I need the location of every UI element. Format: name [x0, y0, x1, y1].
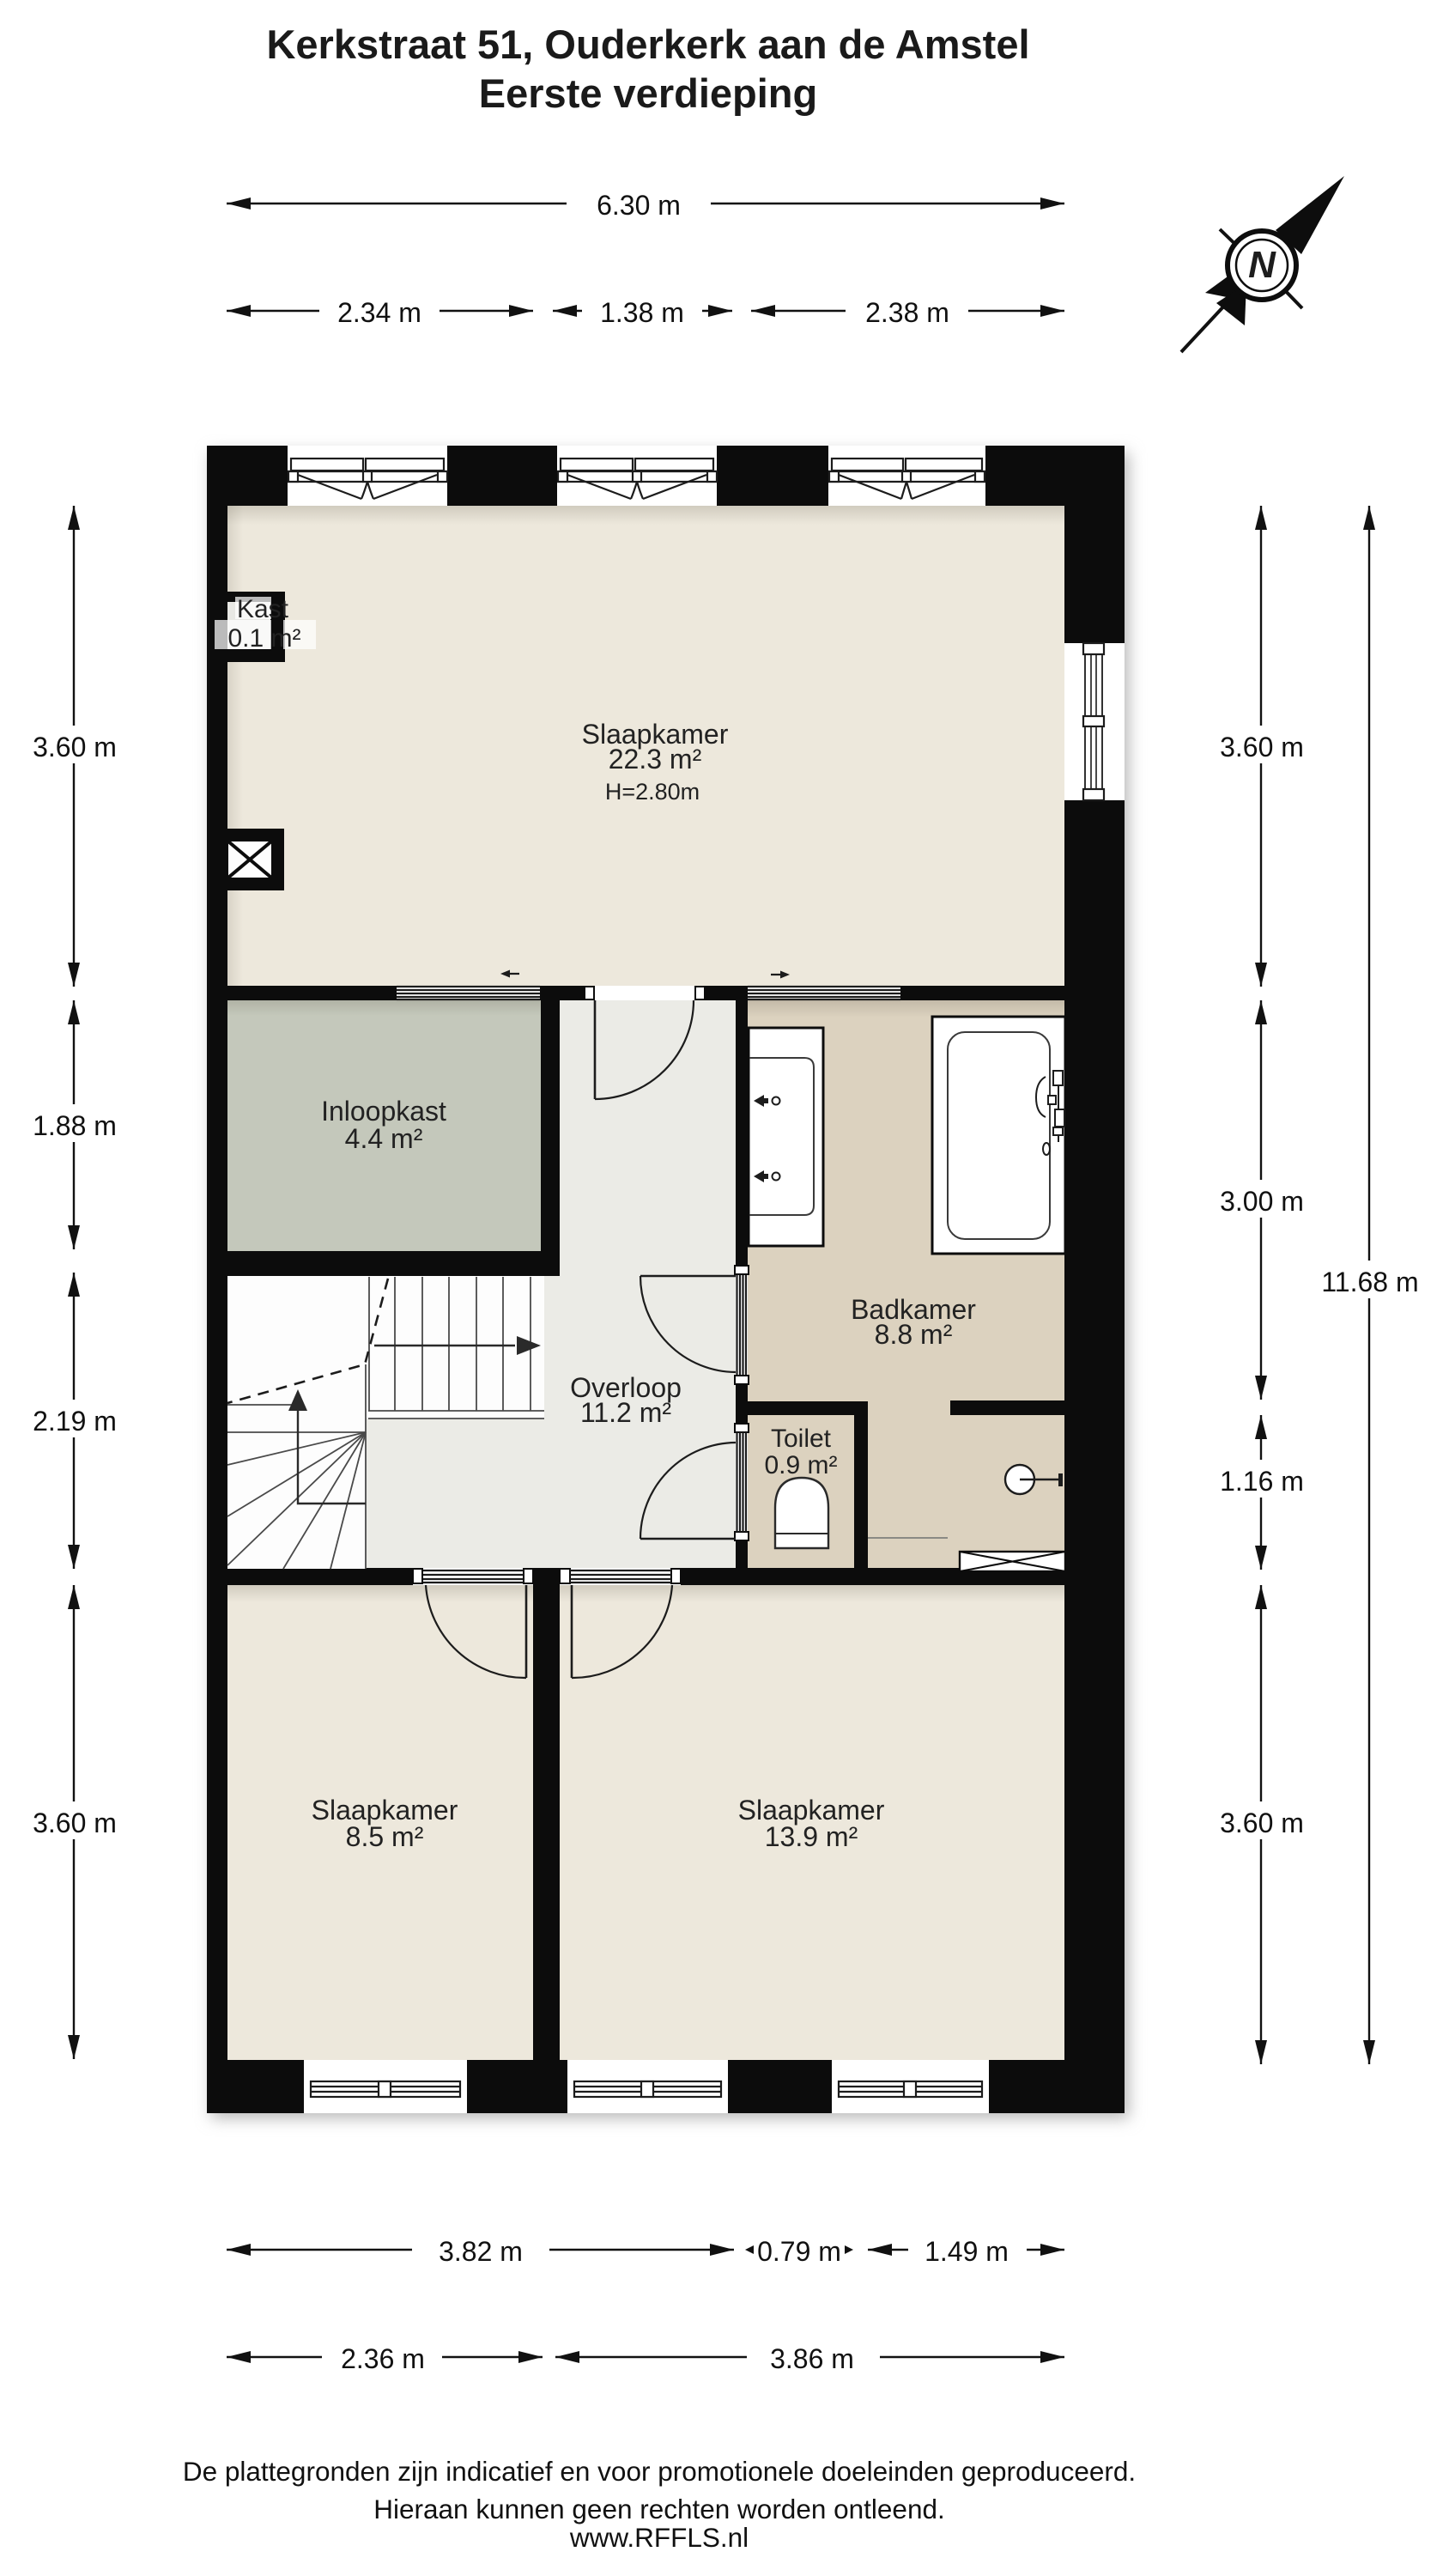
svg-text:4.4 m²: 4.4 m² [345, 1123, 423, 1154]
svg-text:2.34 m: 2.34 m [337, 297, 421, 328]
svg-text:3.82 m: 3.82 m [439, 2236, 523, 2267]
svg-text:De plattegronden zijn indicati: De plattegronden zijn indicatief en voor… [183, 2456, 1136, 2487]
svg-text:11.2 m²: 11.2 m² [580, 1397, 671, 1428]
svg-text:3.86 m: 3.86 m [770, 2343, 854, 2374]
svg-text:Kerkstraat 51, Ouderkerk aan d: Kerkstraat 51, Ouderkerk aan de Amstel [266, 21, 1029, 67]
svg-text:2.38 m: 2.38 m [865, 297, 949, 328]
svg-text:13.9 m²: 13.9 m² [765, 1821, 858, 1852]
svg-text:11.68 m: 11.68 m [1321, 1267, 1418, 1297]
svg-text:Kast: Kast [237, 595, 289, 623]
svg-text:www.RFFLS.nl: www.RFFLS.nl [569, 2522, 749, 2553]
svg-text:H=2.80m: H=2.80m [605, 779, 700, 805]
svg-text:0.1 m²: 0.1 m² [227, 624, 300, 653]
svg-text:8.5 m²: 8.5 m² [346, 1821, 424, 1852]
svg-text:1.49 m: 1.49 m [925, 2236, 1009, 2267]
svg-text:3.60 m: 3.60 m [33, 1807, 117, 1838]
svg-text:3.60 m: 3.60 m [33, 732, 117, 762]
svg-text:1.38 m: 1.38 m [600, 297, 684, 328]
svg-text:0.9 m²: 0.9 m² [764, 1451, 837, 1479]
svg-text:3.60 m: 3.60 m [1220, 1807, 1304, 1838]
svg-text:Toilet: Toilet [771, 1425, 832, 1453]
svg-text:22.3 m²: 22.3 m² [609, 744, 702, 775]
svg-text:2.36 m: 2.36 m [341, 2343, 425, 2374]
svg-text:N: N [1248, 244, 1276, 286]
svg-text:8.8 m²: 8.8 m² [875, 1319, 953, 1350]
svg-text:3.00 m: 3.00 m [1220, 1186, 1304, 1217]
svg-text:Eerste verdieping: Eerste verdieping [479, 70, 817, 116]
svg-text:Inloopkast: Inloopkast [321, 1096, 446, 1127]
svg-text:Hieraan kunnen geen rechten wo: Hieraan kunnen geen rechten worden ontle… [373, 2494, 944, 2524]
svg-text:3.60 m: 3.60 m [1220, 732, 1304, 762]
svg-text:0.79 m: 0.79 m [757, 2236, 841, 2267]
svg-text:1.16 m: 1.16 m [1220, 1466, 1304, 1497]
svg-text:2.19 m: 2.19 m [33, 1406, 117, 1437]
svg-text:6.30 m: 6.30 m [597, 190, 681, 221]
svg-text:1.88 m: 1.88 m [33, 1110, 117, 1141]
